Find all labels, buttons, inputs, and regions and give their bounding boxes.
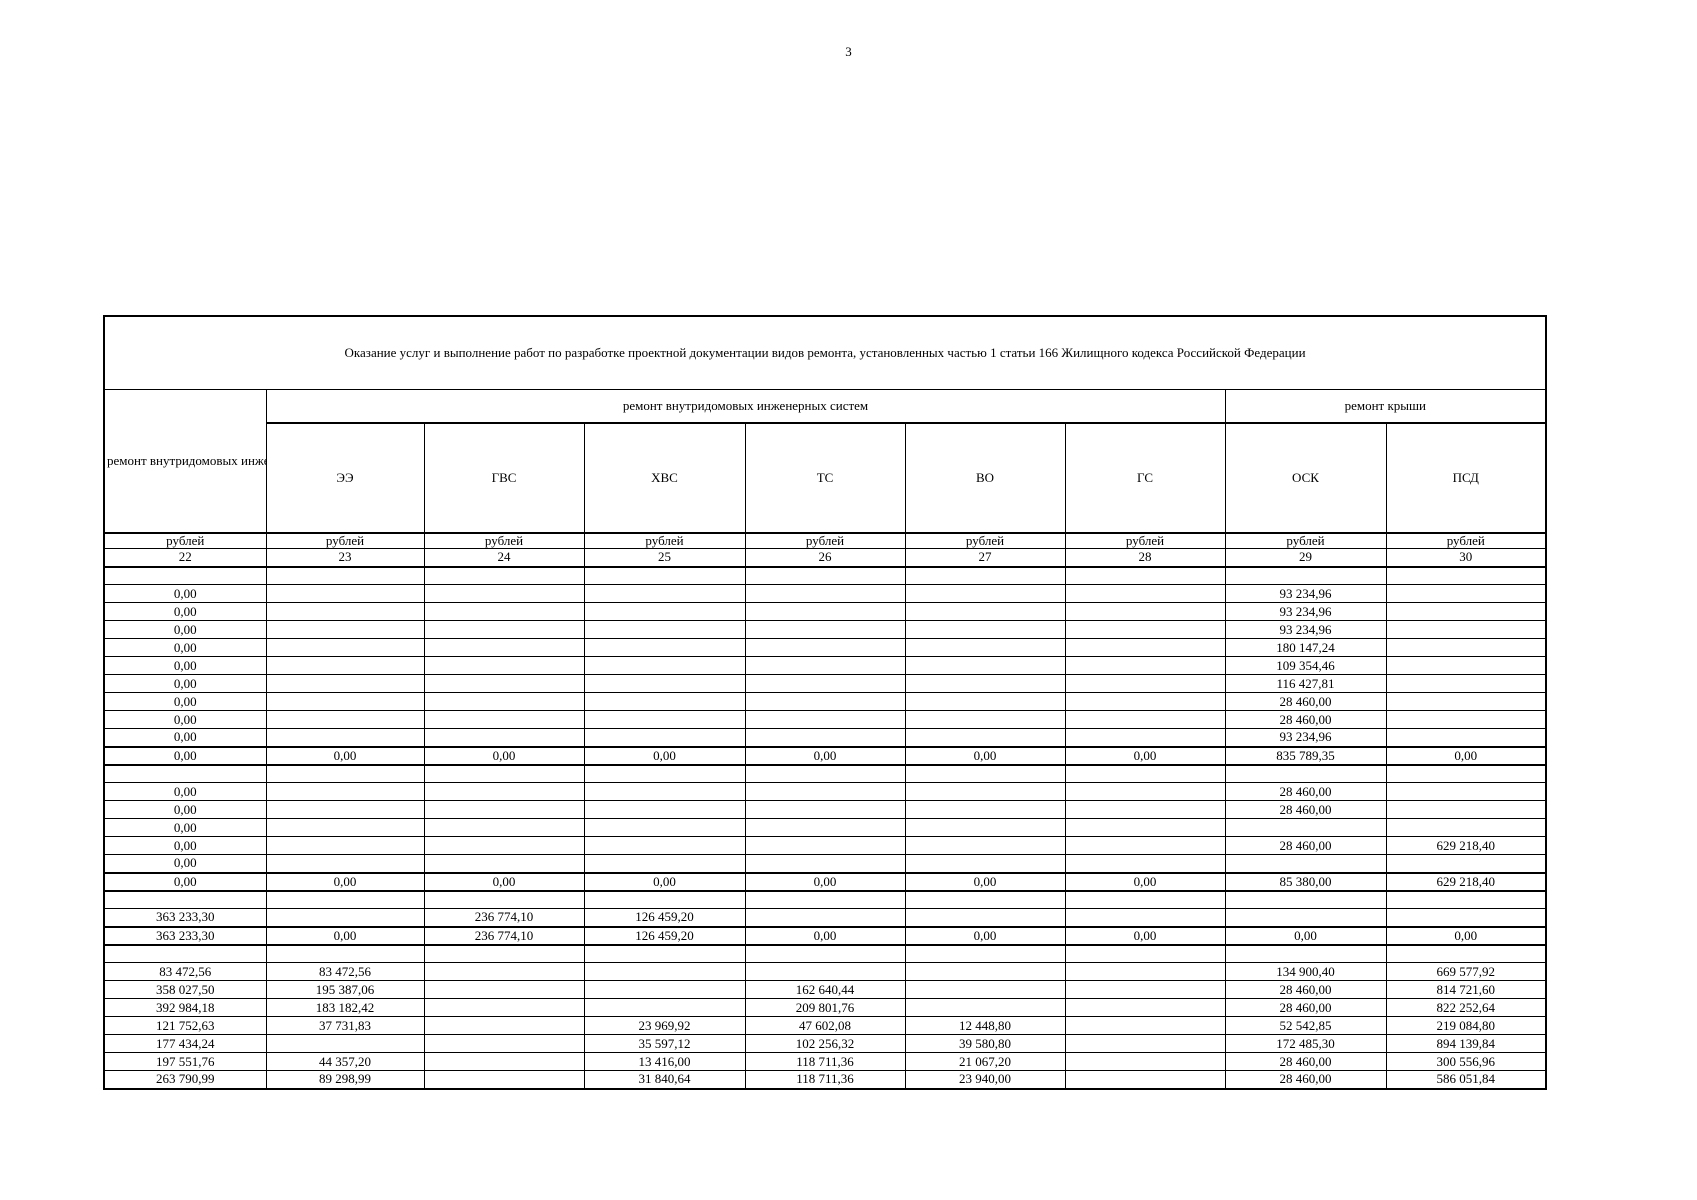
table-cell	[745, 765, 905, 783]
table-cell	[905, 963, 1065, 981]
column-header-psd: ПСД	[1386, 423, 1546, 533]
table-cell	[1386, 819, 1546, 837]
table-cell: 28 460,00	[1225, 801, 1386, 819]
table-row: 0,0093 234,96	[104, 729, 1546, 747]
table-cell	[905, 585, 1065, 603]
table-cell: 0,00	[1386, 927, 1546, 945]
table-cell	[266, 675, 424, 693]
table-cell	[424, 567, 584, 585]
unit-label: рублей	[424, 533, 584, 549]
table-cell	[424, 639, 584, 657]
table-cell	[1065, 603, 1225, 621]
table-cell	[424, 693, 584, 711]
table-cell: 134 900,40	[1225, 963, 1386, 981]
table-total-row: 0,000,000,000,000,000,000,00835 789,350,…	[104, 747, 1546, 765]
table-cell: 109 354,46	[1225, 657, 1386, 675]
table-cell: 0,00	[104, 711, 266, 729]
unit-label: рублей	[1065, 533, 1225, 549]
table-cell	[424, 1071, 584, 1089]
table-row: 0,0028 460,00	[104, 801, 1546, 819]
table-row: 0,0028 460,00	[104, 711, 1546, 729]
table-cell: 358 027,50	[104, 981, 266, 999]
table-cell: 0,00	[584, 747, 745, 765]
table-total-row: 0,000,000,000,000,000,000,0085 380,00629…	[104, 873, 1546, 891]
table-cell	[1225, 891, 1386, 909]
table-row: 0,00116 427,81	[104, 675, 1546, 693]
table-cell: 118 711,36	[745, 1053, 905, 1071]
table-title: Оказание услуг и выполнение работ по раз…	[104, 316, 1546, 389]
table-title-row: Оказание услуг и выполнение работ по раз…	[104, 316, 1546, 389]
table-cell: 0,00	[905, 873, 1065, 891]
table-cell	[424, 855, 584, 873]
table-cell: 0,00	[1386, 747, 1546, 765]
table-cell	[266, 621, 424, 639]
table-cell	[745, 585, 905, 603]
table-cell	[745, 639, 905, 657]
table-cell	[266, 693, 424, 711]
table-cell	[1065, 945, 1225, 963]
table-cell: 0,00	[424, 747, 584, 765]
table-cell	[584, 729, 745, 747]
table-cell: 162 640,44	[745, 981, 905, 999]
table-cell: 0,00	[584, 873, 745, 891]
table-cell	[1065, 891, 1225, 909]
table-row	[104, 891, 1546, 909]
table-cell: 0,00	[266, 747, 424, 765]
table-row: 0,0093 234,96	[104, 585, 1546, 603]
table-cell	[1065, 567, 1225, 585]
table-cell	[905, 891, 1065, 909]
table-cell	[1065, 765, 1225, 783]
table-cell	[1065, 819, 1225, 837]
table-cell: 0,00	[104, 837, 266, 855]
unit-label: рублей	[584, 533, 745, 549]
table-cell	[1065, 855, 1225, 873]
table-cell	[266, 855, 424, 873]
table-cell: 0,00	[104, 621, 266, 639]
table-cell	[266, 639, 424, 657]
table-cell: 0,00	[1065, 927, 1225, 945]
column-header-vo: ВО	[905, 423, 1065, 533]
page-number: 3	[0, 44, 1697, 60]
table-cell	[1386, 783, 1546, 801]
table-cell	[745, 567, 905, 585]
table-cell	[1386, 711, 1546, 729]
table-row: 0,0028 460,00	[104, 783, 1546, 801]
table-cell	[905, 711, 1065, 729]
table-cell	[424, 783, 584, 801]
table-cell	[1065, 801, 1225, 819]
table-cell: 0,00	[104, 801, 266, 819]
table-row: 197 551,7644 357,2013 416,00118 711,3621…	[104, 1053, 1546, 1071]
table-cell	[584, 963, 745, 981]
table-cell: 28 460,00	[1225, 1053, 1386, 1071]
table-cell	[1065, 621, 1225, 639]
table-cell: 183 182,42	[266, 999, 424, 1017]
table-cell	[1386, 945, 1546, 963]
table-row: 0,00109 354,46	[104, 657, 1546, 675]
table-cell: 21 067,20	[905, 1053, 1065, 1071]
table-cell: 814 721,60	[1386, 981, 1546, 999]
table-cell	[424, 1053, 584, 1071]
table-cell	[745, 855, 905, 873]
table-cell	[1065, 1035, 1225, 1053]
table-row	[104, 945, 1546, 963]
table-cell: 0,00	[905, 927, 1065, 945]
table-cell	[1386, 765, 1546, 783]
table-cell	[745, 603, 905, 621]
table-cell	[745, 801, 905, 819]
table-cell: 0,00	[104, 747, 266, 765]
table-cell: 23 940,00	[905, 1071, 1065, 1089]
table-cell: 0,00	[104, 675, 266, 693]
table-column-number-row: 22 23 24 25 26 27 28 29 30	[104, 549, 1546, 567]
table-cell: 93 234,96	[1225, 621, 1386, 639]
table-cell	[424, 1035, 584, 1053]
table-cell	[1386, 657, 1546, 675]
table-cell	[1386, 891, 1546, 909]
table-cell	[905, 765, 1065, 783]
table-cell	[1065, 693, 1225, 711]
unit-label: рублей	[905, 533, 1065, 549]
table-cell: 93 234,96	[1225, 729, 1386, 747]
table-cell: 118 711,36	[745, 1071, 905, 1089]
table-cell	[584, 999, 745, 1017]
table-cell: 177 434,24	[104, 1035, 266, 1053]
table-cell	[1065, 981, 1225, 999]
table-cell: 300 556,96	[1386, 1053, 1546, 1071]
table-cell	[1386, 603, 1546, 621]
table-cell: 629 218,40	[1386, 837, 1546, 855]
table-cell: 37 731,83	[266, 1017, 424, 1035]
table-cell: 116 427,81	[1225, 675, 1386, 693]
table-cell: 83 472,56	[266, 963, 424, 981]
table-row: 0,00180 147,24	[104, 639, 1546, 657]
table-cell: 0,00	[424, 873, 584, 891]
table-cell: 13 416,00	[584, 1053, 745, 1071]
table-cell	[266, 819, 424, 837]
table-row: 358 027,50195 387,06162 640,4428 460,008…	[104, 981, 1546, 999]
table-cell: 28 460,00	[1225, 783, 1386, 801]
table-cell	[1386, 909, 1546, 927]
table-group-header-row: ремонт внутридомовых инженерных систем р…	[104, 389, 1546, 423]
table-cell	[745, 657, 905, 675]
table-cell: 0,00	[266, 927, 424, 945]
table-cell	[424, 981, 584, 999]
table-cell	[905, 729, 1065, 747]
table-cell	[1065, 909, 1225, 927]
table-cell: 12 448,80	[905, 1017, 1065, 1035]
table-cell	[745, 783, 905, 801]
table-row: 121 752,6337 731,8323 969,9247 602,0812 …	[104, 1017, 1546, 1035]
table-cell: 219 084,80	[1386, 1017, 1546, 1035]
table-cell: 363 233,30	[104, 927, 266, 945]
table-cell	[905, 819, 1065, 837]
table-cell	[905, 657, 1065, 675]
table-cell	[266, 567, 424, 585]
table-cell	[584, 657, 745, 675]
table-cell: 0,00	[104, 873, 266, 891]
table-row: 0,0093 234,96	[104, 621, 1546, 639]
unit-label: рублей	[104, 533, 266, 549]
table-cell: 236 774,10	[424, 909, 584, 927]
table-cell: 197 551,76	[104, 1053, 266, 1071]
table-row: 392 984,18183 182,42209 801,7628 460,008…	[104, 999, 1546, 1017]
table-cell: 28 460,00	[1225, 837, 1386, 855]
column-number: 29	[1225, 549, 1386, 567]
unit-label: рублей	[745, 533, 905, 549]
table-cell: 195 387,06	[266, 981, 424, 999]
table-cell	[745, 729, 905, 747]
column-header-ts: ТС	[745, 423, 905, 533]
table-cell: 39 580,80	[905, 1035, 1065, 1053]
table-unit-row: рублей рублей рублей рублей рублей рубле…	[104, 533, 1546, 549]
table-row: 0,0028 460,00	[104, 693, 1546, 711]
column-header-indoor-systems-repair: ремонт внутридомовых инженерных систем	[104, 389, 266, 533]
table-cell: 93 234,96	[1225, 585, 1386, 603]
table-cell	[1065, 711, 1225, 729]
table-cell	[266, 945, 424, 963]
table-cell: 0,00	[104, 585, 266, 603]
table-column-name-row: ЭЭ ГВС ХВС ТС ВО ГС ОСК ПСД	[104, 423, 1546, 533]
table-cell	[1386, 639, 1546, 657]
table-cell: 121 752,63	[104, 1017, 266, 1035]
table-cell	[745, 819, 905, 837]
table-cell	[266, 909, 424, 927]
column-header-gs: ГС	[1065, 423, 1225, 533]
table-cell	[266, 891, 424, 909]
table-cell	[584, 639, 745, 657]
table-cell	[905, 603, 1065, 621]
table-cell: 126 459,20	[584, 909, 745, 927]
table-cell: 0,00	[266, 873, 424, 891]
table-cell	[584, 945, 745, 963]
table-cell	[424, 585, 584, 603]
table-cell	[584, 621, 745, 639]
table-cell	[266, 783, 424, 801]
table-cell: 28 460,00	[1225, 693, 1386, 711]
table-cell: 31 840,64	[584, 1071, 745, 1089]
column-number: 28	[1065, 549, 1225, 567]
table-cell	[1065, 963, 1225, 981]
table-cell	[584, 765, 745, 783]
table-cell	[584, 801, 745, 819]
table-cell	[905, 639, 1065, 657]
table-cell	[584, 675, 745, 693]
table-cell	[266, 603, 424, 621]
table-cell: 0,00	[1065, 873, 1225, 891]
column-number: 26	[745, 549, 905, 567]
table-cell: 835 789,35	[1225, 747, 1386, 765]
table-cell	[424, 999, 584, 1017]
table-cell	[905, 675, 1065, 693]
table-cell	[1386, 585, 1546, 603]
unit-label: рублей	[1225, 533, 1386, 549]
table-cell: 180 147,24	[1225, 639, 1386, 657]
table-cell: 236 774,10	[424, 927, 584, 945]
table-cell: 0,00	[745, 873, 905, 891]
table-cell: 52 542,85	[1225, 1017, 1386, 1035]
table-cell	[1386, 729, 1546, 747]
table-cell	[266, 585, 424, 603]
table-row: 0,0028 460,00629 218,40	[104, 837, 1546, 855]
column-number: 27	[905, 549, 1065, 567]
table-cell	[905, 801, 1065, 819]
table-row	[104, 567, 1546, 585]
unit-label: рублей	[266, 533, 424, 549]
repair-cost-table: Оказание услуг и выполнение работ по раз…	[103, 315, 1547, 1090]
table-cell	[1225, 765, 1386, 783]
column-number: 24	[424, 549, 584, 567]
table-cell	[905, 621, 1065, 639]
table-cell	[1386, 621, 1546, 639]
table-cell	[424, 657, 584, 675]
table-cell	[1065, 729, 1225, 747]
table-total-row: 363 233,300,00236 774,10126 459,200,000,…	[104, 927, 1546, 945]
table-cell: 28 460,00	[1225, 999, 1386, 1017]
table-cell: 102 256,32	[745, 1035, 905, 1053]
table-cell	[584, 855, 745, 873]
table-cell	[584, 711, 745, 729]
table-cell	[905, 855, 1065, 873]
table-cell	[905, 567, 1065, 585]
table-cell	[1386, 675, 1546, 693]
table-cell: 0,00	[104, 855, 266, 873]
table-cell	[266, 801, 424, 819]
table-cell	[266, 765, 424, 783]
column-number: 30	[1386, 549, 1546, 567]
table-cell	[266, 729, 424, 747]
table-cell	[905, 837, 1065, 855]
table-cell: 28 460,00	[1225, 711, 1386, 729]
table-cell	[266, 837, 424, 855]
table-cell: 89 298,99	[266, 1071, 424, 1089]
table-cell	[1065, 639, 1225, 657]
table-cell	[1386, 801, 1546, 819]
column-header-hvs: ХВС	[584, 423, 745, 533]
table-cell: 0,00	[1065, 747, 1225, 765]
table-cell	[905, 783, 1065, 801]
table-row: 83 472,5683 472,56134 900,40669 577,92	[104, 963, 1546, 981]
document-page: 3 Оказание услуг и выполнение работ по р…	[0, 0, 1697, 1200]
table-cell	[584, 819, 745, 837]
table-cell: 44 357,20	[266, 1053, 424, 1071]
table-cell	[1065, 675, 1225, 693]
table-cell: 28 460,00	[1225, 1071, 1386, 1089]
table-cell	[1225, 819, 1386, 837]
table-cell: 0,00	[104, 693, 266, 711]
table-cell: 0,00	[905, 747, 1065, 765]
table-row	[104, 765, 1546, 783]
table-cell: 0,00	[104, 657, 266, 675]
column-number: 25	[584, 549, 745, 567]
table-cell	[745, 675, 905, 693]
table-cell	[1065, 585, 1225, 603]
table-row: 177 434,2435 597,12102 256,3239 580,8017…	[104, 1035, 1546, 1053]
table-cell	[266, 1035, 424, 1053]
table-cell	[424, 891, 584, 909]
table-cell: 23 969,92	[584, 1017, 745, 1035]
table-cell	[104, 765, 266, 783]
table-cell	[584, 981, 745, 999]
table-cell	[424, 963, 584, 981]
table-cell	[745, 945, 905, 963]
table-cell	[905, 693, 1065, 711]
table-cell: 669 577,92	[1386, 963, 1546, 981]
table-cell	[584, 603, 745, 621]
table-cell	[1225, 567, 1386, 585]
table-row: 363 233,30236 774,10126 459,20	[104, 909, 1546, 927]
table-cell: 83 472,56	[104, 963, 266, 981]
table-cell	[584, 585, 745, 603]
table-cell	[745, 963, 905, 981]
table-cell	[424, 819, 584, 837]
table-cell	[745, 891, 905, 909]
table-cell	[584, 837, 745, 855]
table-cell: 0,00	[104, 819, 266, 837]
table-cell: 894 139,84	[1386, 1035, 1546, 1053]
table-cell: 392 984,18	[104, 999, 266, 1017]
table-cell: 822 252,64	[1386, 999, 1546, 1017]
table-cell	[424, 765, 584, 783]
table-cell	[905, 945, 1065, 963]
table-cell	[745, 621, 905, 639]
group-header-engineering-systems: ремонт внутридомовых инженерных систем	[266, 389, 1225, 423]
table-cell: 263 790,99	[104, 1071, 266, 1089]
table-cell	[104, 891, 266, 909]
table-cell	[745, 711, 905, 729]
table-cell	[104, 567, 266, 585]
column-header-ee: ЭЭ	[266, 423, 424, 533]
table-cell: 0,00	[745, 927, 905, 945]
column-number: 22	[104, 549, 266, 567]
table-cell	[266, 711, 424, 729]
table-cell	[745, 837, 905, 855]
table-cell	[1065, 1053, 1225, 1071]
table-cell: 0,00	[104, 639, 266, 657]
table-cell	[905, 909, 1065, 927]
table-cell: 172 485,30	[1225, 1035, 1386, 1053]
table-cell	[584, 567, 745, 585]
table-cell: 0,00	[104, 603, 266, 621]
table-cell	[1065, 999, 1225, 1017]
table-cell	[1225, 945, 1386, 963]
table-cell	[1065, 1071, 1225, 1089]
table-cell	[905, 981, 1065, 999]
table-cell: 35 597,12	[584, 1035, 745, 1053]
table-cell: 586 051,84	[1386, 1071, 1546, 1089]
table-cell	[584, 783, 745, 801]
table-body: 0,0093 234,960,0093 234,960,0093 234,960…	[104, 567, 1546, 1089]
table-cell	[424, 675, 584, 693]
table-cell	[104, 945, 266, 963]
table-cell	[745, 693, 905, 711]
table-cell	[905, 999, 1065, 1017]
table-cell: 85 380,00	[1225, 873, 1386, 891]
table-row: 0,00	[104, 819, 1546, 837]
table-cell: 47 602,08	[745, 1017, 905, 1035]
table-cell: 0,00	[1225, 927, 1386, 945]
table-cell	[584, 693, 745, 711]
table-cell	[424, 603, 584, 621]
table-cell: 28 460,00	[1225, 981, 1386, 999]
table-cell	[424, 1017, 584, 1035]
table-cell: 209 801,76	[745, 999, 905, 1017]
table-cell: 126 459,20	[584, 927, 745, 945]
table-cell	[1065, 837, 1225, 855]
table-cell	[424, 621, 584, 639]
table-cell	[1386, 693, 1546, 711]
